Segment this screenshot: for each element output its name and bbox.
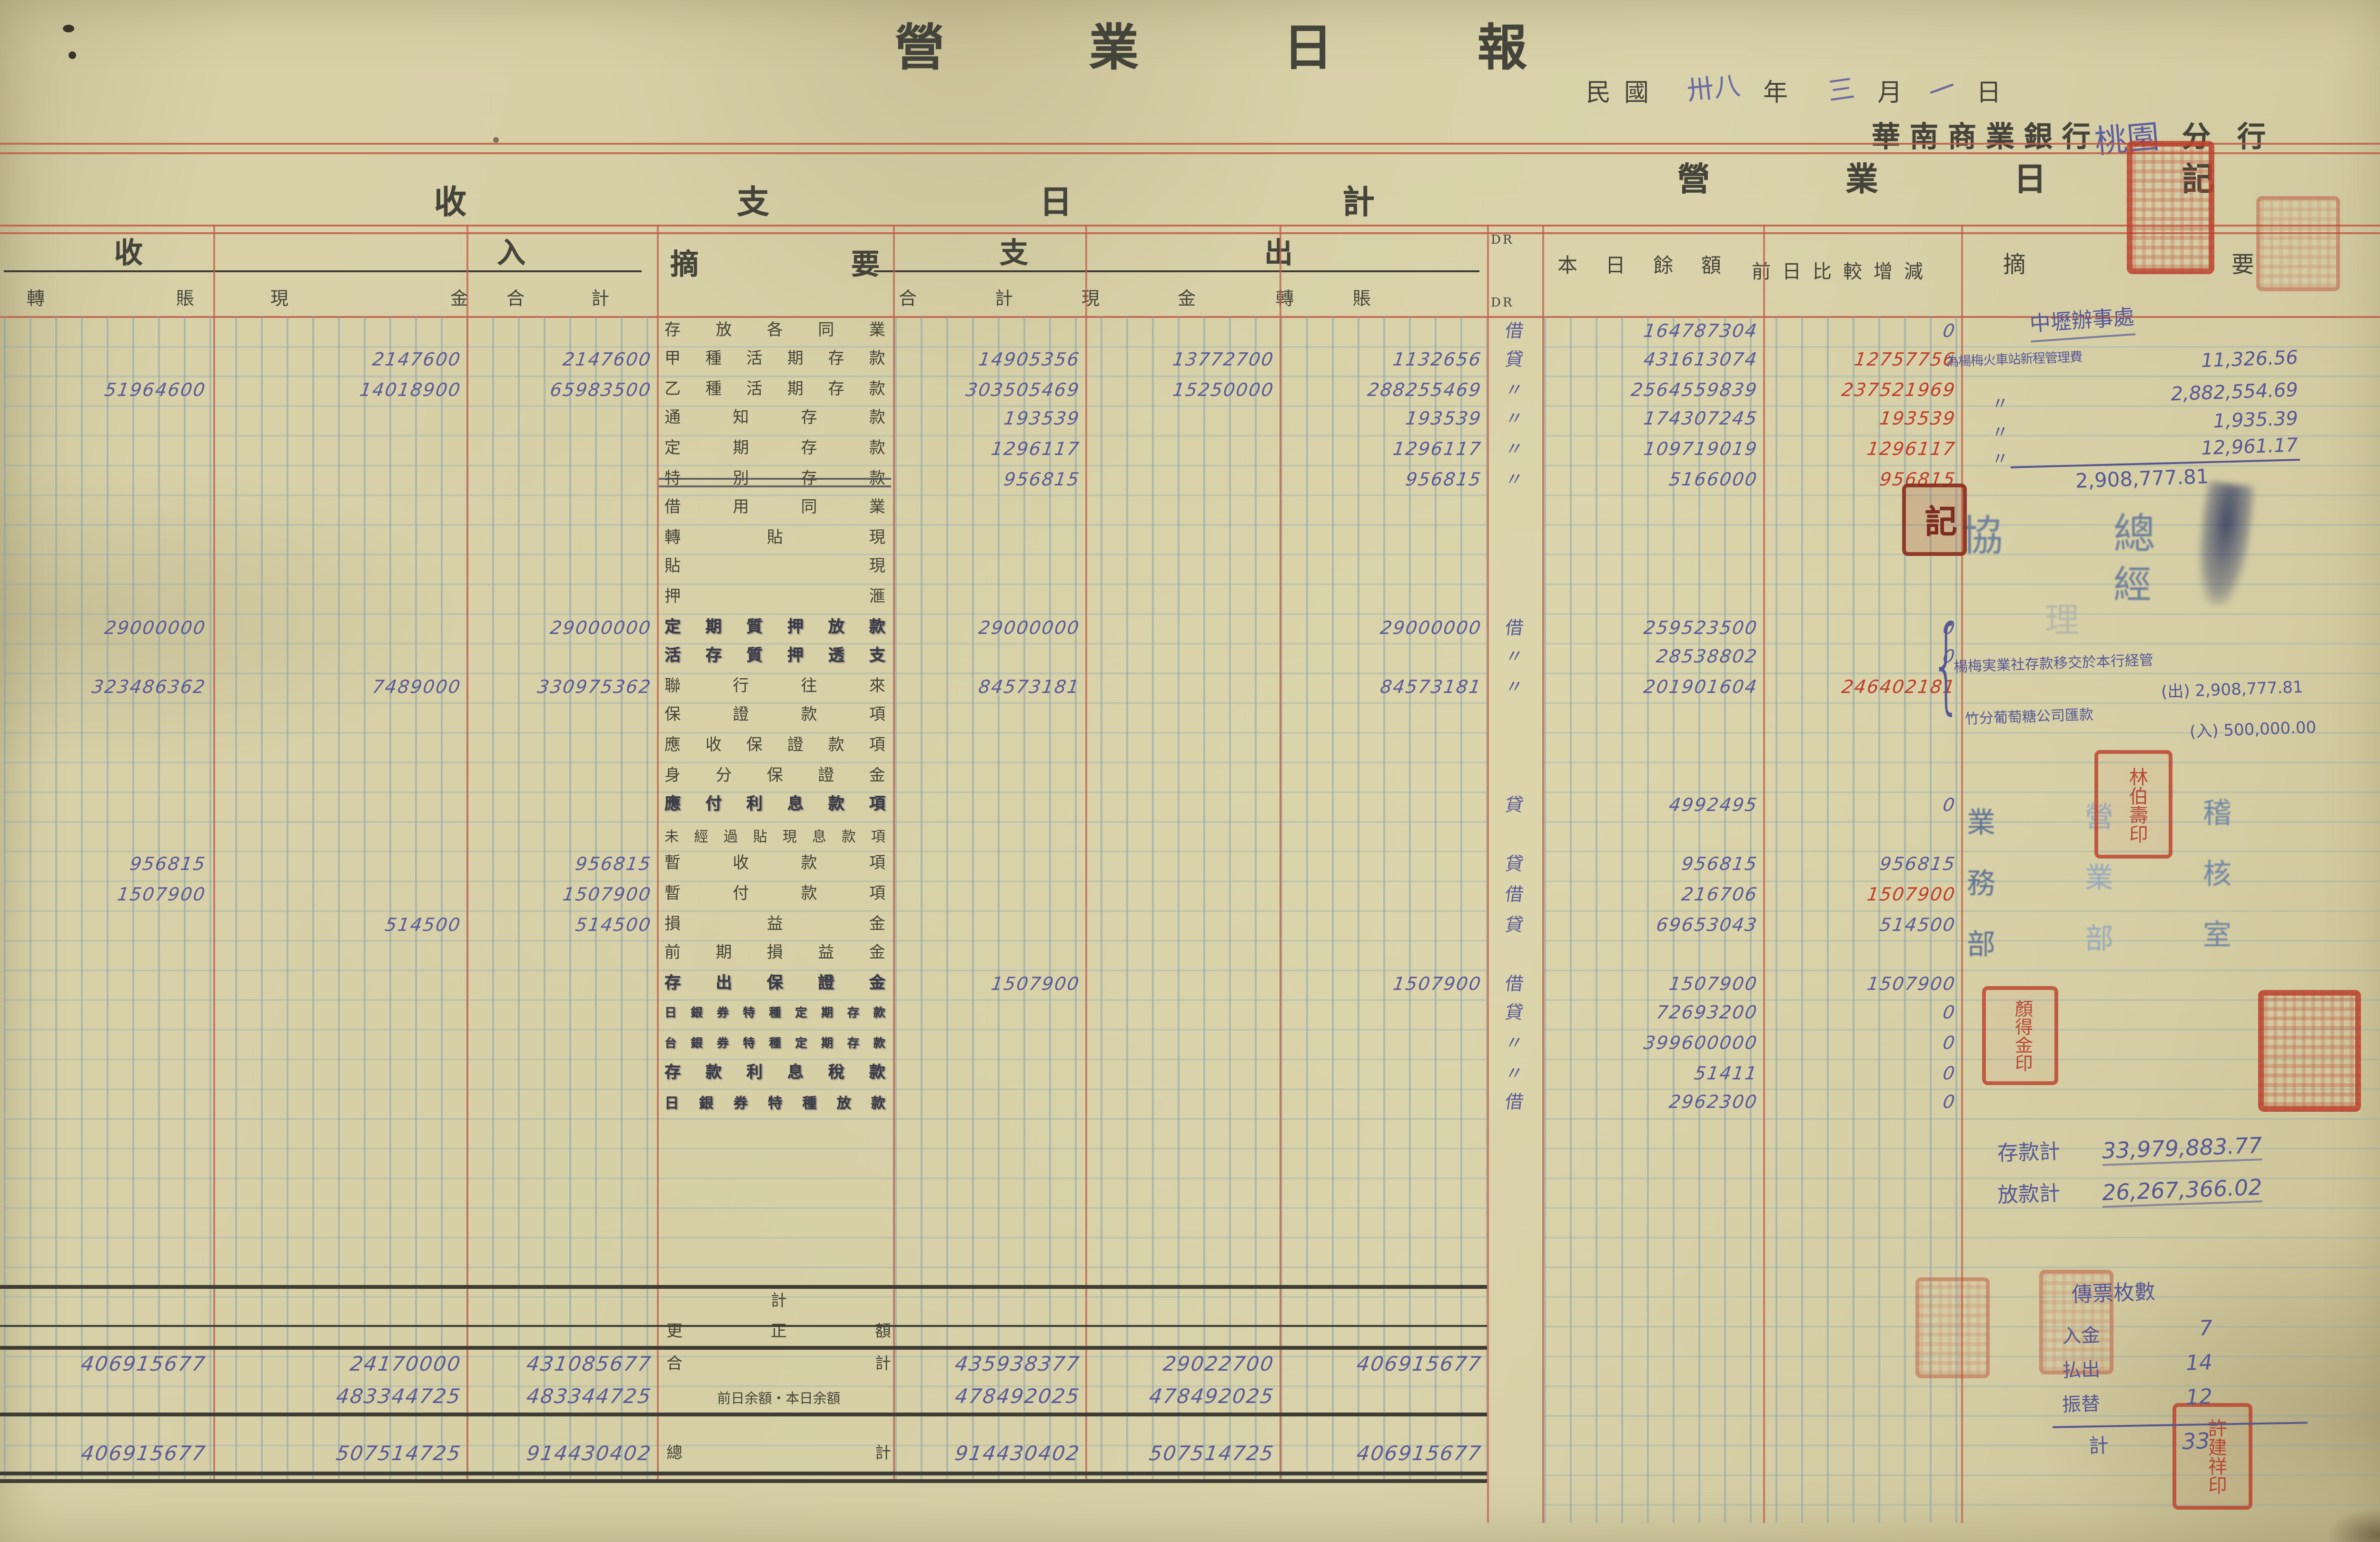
table-row: 定期質押放款29000000290000002900000029000000借2…	[0, 614, 2380, 643]
account-label: 存出保證金	[664, 970, 885, 1000]
xu-seal: 許建祥印	[2172, 1403, 2252, 1510]
amount-et: 84573181	[889, 673, 1082, 703]
table-row: 聯行往來323486362748900033097536284573181845…	[0, 673, 2380, 703]
ditto-mark: 〃	[1991, 390, 2009, 415]
char: 計	[1342, 175, 1375, 223]
account-label: 甲種活期存款	[664, 346, 885, 376]
amount-ic: 507514725	[215, 1440, 463, 1470]
summary-column-label: 摘要	[670, 244, 880, 284]
account-label: 轉貼現	[664, 525, 885, 554]
table-row: 應付利息款項貸49924950	[0, 792, 2380, 821]
account-label: 應收保證款項	[664, 733, 885, 762]
amount-etr: 29000000	[1274, 614, 1484, 643]
table-row: 身分保證金	[0, 762, 2380, 792]
total-rule	[0, 1346, 1487, 1349]
dr-marker: 〃	[1487, 376, 1543, 406]
char: 業	[1089, 10, 1139, 80]
dr-marker: 〃	[1487, 436, 1543, 465]
amount-ic: 24170000	[215, 1351, 463, 1380]
voucher-label: 振替	[2062, 1387, 2101, 1417]
amount-itot: 330975362	[466, 673, 654, 703]
voucher-total-label: 計	[2088, 1431, 2109, 1460]
total-rule	[0, 1285, 1487, 1288]
total-label: 合計	[666, 1351, 891, 1380]
amount-bal: 1507900	[1542, 970, 1775, 1000]
header-underline	[874, 270, 1479, 272]
char: 摘	[2003, 247, 2026, 280]
header-underline	[4, 270, 642, 272]
dr-marker: 〃	[1487, 673, 1543, 703]
account-label: 暫付款項	[664, 881, 885, 911]
table-row: 貼現	[0, 554, 2380, 584]
dr-marker: 貸	[1487, 1000, 1543, 1029]
char: 報	[1478, 10, 1527, 80]
account-label: 通知存款	[664, 406, 885, 435]
dept-audit: 稽核室	[2197, 798, 2237, 980]
total-row: 計	[0, 1288, 2380, 1317]
char: 減	[1904, 255, 1923, 284]
amount-it: 406915677	[2, 1440, 208, 1470]
char: 賬	[1353, 284, 1371, 310]
table-row: 借用同業	[0, 495, 2380, 524]
document-title: 營業日報	[895, 10, 1527, 80]
amount-chg: 0	[1763, 1000, 2007, 1029]
dr-marker: 貸	[1487, 346, 1543, 376]
amount-et: 956815	[889, 465, 1082, 495]
red-seal-top	[2127, 141, 2214, 274]
total-label: 計	[666, 1288, 891, 1317]
amount-ic: 7489000	[215, 673, 463, 703]
amount-etr: 84573181	[1274, 673, 1484, 703]
amount-et: 1507900	[889, 970, 1082, 1000]
amount-itot: 514500	[466, 911, 654, 940]
amount-ec: 13772700	[1080, 346, 1276, 376]
amount-chg: 0	[1763, 1089, 2007, 1118]
income-col-total: 合計	[506, 284, 609, 310]
char: 前	[1752, 255, 1771, 284]
staple-mark	[69, 51, 76, 59]
amount-ic: 514500	[215, 911, 463, 940]
dr-marker: 〃	[1487, 643, 1543, 673]
char: 要	[2231, 247, 2254, 280]
char: 日	[1283, 10, 1333, 80]
total-rule	[0, 1325, 1487, 1327]
char: 營	[1677, 152, 1710, 200]
amount-bal: 201901604	[1542, 673, 1775, 703]
amount-bal: 4992495	[1542, 792, 1775, 821]
char: 日	[1606, 251, 1626, 280]
voucher-label: 払出	[2062, 1353, 2101, 1383]
account-label: 定期質押放款	[664, 614, 885, 643]
table-row: 特別存款956815956815〃5166000956815	[0, 465, 2380, 495]
amount-ic: 483344725	[215, 1383, 463, 1413]
dr-label-bottom: DR	[1491, 295, 1514, 310]
char: 入	[497, 232, 526, 272]
table-row: 損益金514500514500貸69653043514500	[0, 911, 2380, 940]
account-label: 存款利息稅款	[664, 1059, 885, 1089]
account-label: 身分保證金	[664, 762, 885, 792]
amount-bal: 431613074	[1542, 346, 1775, 376]
bank-name: 華南商業銀行	[1872, 116, 2100, 156]
voucher-value: 14	[2132, 1350, 2213, 1378]
amount-it: 1507900	[2, 881, 208, 911]
amount-bal: 174307245	[1542, 406, 1775, 435]
amount-chg: 514500	[1763, 911, 1977, 940]
char: 日	[2014, 152, 2046, 200]
income-group-label: 收入	[114, 232, 526, 272]
income-col-transfer: 轉賬	[27, 284, 194, 310]
char: 額	[1701, 251, 1721, 280]
note-b-value: (入) 500,000.00	[2189, 715, 2317, 742]
amount-chg: 956815	[1763, 851, 1977, 881]
char: 收	[114, 232, 143, 272]
dr-marker: 借	[1487, 1089, 1543, 1118]
amount-chg: 237521969	[1763, 376, 1977, 406]
amount-bal: 51411	[1542, 1059, 1775, 1089]
amount-itot: 914430402	[466, 1440, 654, 1470]
account-label: 暫收款項	[664, 851, 885, 881]
char: 收	[434, 175, 466, 223]
red-rule	[0, 142, 2380, 145]
dr-marker: 貸	[1487, 911, 1543, 940]
table-row: 轉貼現	[0, 525, 2380, 554]
amount-et: 303505469	[889, 376, 1082, 406]
amount-bal: 164787304	[1542, 317, 1775, 346]
account-label: 損益金	[664, 911, 885, 940]
day-suffix: 日	[1976, 72, 2001, 109]
amount-chg: 1507900	[1763, 881, 1977, 911]
char: 金	[450, 284, 468, 310]
total-row: 合計40691567724170000431085677435938377290…	[0, 1351, 2380, 1380]
table-row: 押滙	[0, 584, 2380, 614]
ditto-mark: 〃	[1991, 418, 2009, 444]
dr-marker: 貸	[1487, 851, 1543, 881]
amount-it: 29000000	[2, 614, 208, 643]
char: 要	[851, 244, 880, 284]
account-label: 特別存款	[664, 465, 885, 495]
table-row: 暫付款項15079001507900借2167061507900	[0, 881, 2380, 911]
balance-column-label: 本日餘額	[1557, 251, 1721, 280]
expense-col-cash: 現金	[1081, 284, 1196, 310]
amount-bal: 399600000	[1542, 1030, 1775, 1059]
expense-col-total: 合計	[899, 284, 1013, 310]
red-seal-top-right	[2256, 196, 2340, 291]
total-label: 更正額	[666, 1319, 891, 1349]
char: 比	[1813, 255, 1832, 284]
amount-ec: 29022700	[1080, 1351, 1276, 1380]
table-row: 暫收款項956815956815貸956815956815	[0, 851, 2380, 881]
table-row: 定期存款12961171296117〃1097190191296117	[0, 436, 2380, 465]
total-rule	[0, 1479, 1487, 1482]
voucher-heading: 傳票枚數	[2071, 1276, 2156, 1309]
ji-stamp-text: 記	[1917, 504, 1951, 536]
day-handwritten: 一	[1923, 67, 1961, 112]
voucher-value: 7	[2132, 1316, 2213, 1344]
char: 合	[506, 284, 525, 310]
account-label: 乙種活期存款	[664, 376, 885, 406]
amount-bal: 259523500	[1542, 614, 1775, 643]
faint-seal-left	[1915, 1277, 1990, 1378]
table-row: 存放各同業借1647873040	[0, 317, 2380, 346]
total-row: 前日余額・本日余額4833447254833447254784920254784…	[0, 1383, 2380, 1413]
amount-itot: 2147600	[466, 346, 654, 376]
table-row: 應收保證款項	[0, 733, 2380, 762]
amount-et: 478492025	[889, 1383, 1082, 1413]
amount-it: 406915677	[2, 1351, 208, 1380]
dr-marker: 借	[1487, 317, 1543, 346]
char: 餘	[1653, 251, 1673, 280]
voucher-label: 入金	[2062, 1319, 2101, 1349]
account-label: 聯行往來	[664, 673, 885, 703]
deposits-total-value: 33,979,883.77	[2102, 1132, 2262, 1166]
amount-bal: 956815	[1542, 851, 1775, 881]
account-label: 前期損益金	[664, 940, 885, 970]
year-handwritten: 卅八	[1685, 66, 1742, 109]
amount-etr: 288255469	[1274, 376, 1484, 406]
amount-chg: 0	[1763, 614, 2007, 643]
char: 增	[1874, 255, 1893, 284]
account-label: 定期存款	[664, 436, 885, 465]
char: 轉	[27, 284, 45, 310]
char: 計	[995, 284, 1013, 310]
note-total: 2,908,777.81	[2075, 466, 2209, 494]
char: 支	[737, 175, 769, 223]
amount-ic: 2147600	[215, 346, 463, 376]
amount-etr: 1507900	[1274, 970, 1484, 1000]
dr-marker: 借	[1487, 881, 1543, 911]
income-col-cash: 現金	[270, 284, 468, 310]
total-label: 總計	[666, 1440, 891, 1470]
amount-ec: 478492025	[1080, 1383, 1276, 1413]
staple-mark	[63, 25, 74, 32]
yan-seal-text: 顏得金印	[2011, 999, 2030, 1072]
lin-seal: 林伯壽印	[2094, 750, 2172, 859]
expense-col-transfer: 轉賬	[1276, 284, 1371, 310]
amount-chg: 0	[1763, 317, 2007, 346]
amount-chg: 193539	[1763, 406, 1977, 435]
change-column-label: 前日比較增減	[1752, 255, 1923, 284]
scan-viewport: 營業日報 民國 卅八 年 三 月 一 日 華南商業銀行 桃園 分行 收支日計 營…	[0, 0, 2380, 1542]
amount-itot: 956815	[466, 851, 654, 881]
amount-bal: 216706	[1542, 881, 1775, 911]
amount-itot: 1507900	[466, 881, 654, 911]
red-seal-audit	[2258, 990, 2361, 1112]
voucher-value: 12	[2132, 1384, 2213, 1412]
table-row: 乙種活期存款5196460014018900659835003035054691…	[0, 376, 2380, 406]
char: 現	[1081, 284, 1100, 310]
char: 現	[270, 284, 288, 310]
yan-seal: 顏得金印	[1982, 986, 2058, 1085]
amount-it: 323486362	[2, 673, 208, 703]
amount-ic: 14018900	[215, 376, 463, 406]
amount-etr: 193539	[1274, 406, 1484, 435]
loans-total-value: 26,267,366.02	[2102, 1174, 2262, 1208]
amount-etr: 1132656	[1274, 346, 1484, 376]
amount-bal: 2962300	[1542, 1089, 1775, 1118]
amount-et: 914430402	[889, 1440, 1082, 1470]
amount-bal: 5166000	[1542, 465, 1775, 495]
amount-chg: 1296117	[1763, 436, 1977, 465]
signature-xie: 協	[1961, 503, 2003, 563]
dr-marker: 借	[1487, 614, 1543, 643]
month-suffix: 月	[1877, 72, 1902, 109]
amount-chg: 0	[1763, 1030, 2007, 1059]
era-label: 民國	[1586, 72, 1662, 109]
char: 本	[1557, 251, 1577, 280]
char: 營	[895, 10, 944, 80]
amount-itot: 431085677	[466, 1351, 654, 1380]
lin-seal-text: 林伯壽印	[2123, 766, 2143, 842]
signature-jing: 經	[2113, 554, 2152, 609]
table-row: 未經過貼現息款項	[0, 822, 2380, 851]
account-label: 日銀券特種放款	[664, 1089, 885, 1118]
amount-chg: 0	[1763, 1059, 2007, 1089]
amount-it: 51964600	[2, 376, 208, 406]
ditto-mark: 〃	[1991, 445, 2009, 470]
char: 日	[1782, 255, 1801, 284]
dr-marker: 貸	[1487, 792, 1543, 821]
dr-marker: 〃	[1487, 1059, 1543, 1089]
amount-et: 435938377	[889, 1351, 1082, 1380]
dr-marker: 〃	[1487, 465, 1543, 495]
amount-it: 956815	[2, 851, 208, 881]
amount-bal: 72693200	[1542, 1000, 1775, 1029]
expense-group-label: 支出	[1000, 232, 1293, 272]
amount-chg: 12757756	[1763, 346, 1977, 376]
signature-li-faint: 理	[2045, 594, 2079, 643]
note-b-text: 竹分葡萄糖公司匯款	[1964, 704, 2093, 729]
signature-zong: 總	[2113, 501, 2155, 562]
dr-marker: 借	[1487, 970, 1543, 1000]
char: 業	[1845, 152, 1878, 200]
account-label: 借用同業	[664, 495, 885, 524]
account-label: 押滙	[664, 584, 885, 614]
char: 較	[1843, 255, 1862, 284]
ji-stamp: 記	[1902, 484, 1967, 556]
char: 轉	[1276, 284, 1294, 310]
dr-marker: 〃	[1487, 1030, 1543, 1059]
amount-etr: 406915677	[1274, 1440, 1484, 1470]
voucher-total-value: 33	[2182, 1427, 2210, 1455]
char: 合	[899, 284, 917, 310]
amount-bal: 109719019	[1542, 436, 1775, 465]
table-row: 通知存款193539193539〃174307245193539	[0, 406, 2380, 435]
char: 摘	[670, 244, 699, 284]
char: 出	[1264, 232, 1293, 272]
office-heading: 中壢辦事處	[2029, 301, 2135, 342]
red-rule	[0, 225, 2380, 227]
amount-et: 193539	[889, 406, 1082, 435]
char: 計	[591, 284, 609, 310]
amount-bal: 28538802	[1542, 643, 1775, 673]
total-label: 前日余額・本日余額	[666, 1383, 891, 1413]
amount-etr: 1296117	[1274, 436, 1484, 465]
account-label: 活存質押透支	[664, 643, 885, 673]
char: 支	[1000, 232, 1028, 272]
char: 金	[1178, 284, 1196, 310]
account-label: 存放各同業	[664, 317, 885, 346]
amount-itot: 65983500	[466, 376, 654, 406]
amount-bal: 2564559839	[1542, 376, 1775, 406]
total-rule	[0, 1472, 1487, 1474]
daily-business-report-sheet: 營業日報 民國 卅八 年 三 月 一 日 華南商業銀行 桃園 分行 收支日計 營…	[0, 0, 2380, 1542]
month-handwritten: 三	[1825, 69, 1857, 110]
amount-itot: 483344725	[466, 1383, 654, 1413]
year-suffix: 年	[1763, 72, 1788, 109]
dept-operations: 業務部	[1961, 807, 2001, 990]
amount-ec: 15250000	[1080, 376, 1276, 406]
account-label: 日銀券特種定期存款	[664, 1000, 885, 1029]
dr-marker: 〃	[1487, 406, 1543, 435]
total-rule	[0, 1413, 1487, 1416]
account-label: 未經過貼現息款項	[664, 822, 885, 851]
account-label: 應付利息款項	[664, 792, 885, 821]
table-row: 前期損益金	[0, 940, 2380, 970]
total-row: 更正額	[0, 1319, 2380, 1349]
amount-et: 1296117	[889, 436, 1082, 465]
total-row: 總計40691567750751472591443040291443040250…	[0, 1440, 2380, 1470]
left-section-title: 收支日計	[434, 175, 1375, 223]
dr-label-top: DR	[1491, 232, 1514, 247]
amount-itot: 29000000	[466, 614, 654, 643]
amount-et: 29000000	[889, 614, 1082, 643]
char: 日	[1040, 175, 1072, 223]
account-label: 保證款項	[664, 703, 885, 732]
amount-chg: 1507900	[1763, 970, 1977, 1000]
deposits-total-label: 存款計	[1997, 1136, 2061, 1168]
amount-etr: 956815	[1274, 465, 1484, 495]
account-label: 貼現	[664, 554, 885, 584]
char: 賬	[176, 284, 194, 310]
amount-etr: 406915677	[1274, 1351, 1484, 1380]
amount-ec: 507514725	[1080, 1440, 1276, 1470]
account-label: 台銀券特種定期存款	[664, 1030, 885, 1059]
table-row: 日銀券特種放款借29623000	[0, 1089, 2380, 1118]
amount-et: 14905356	[889, 346, 1082, 376]
amount-bal: 69653043	[1542, 911, 1775, 940]
loans-total-label: 放款計	[1997, 1177, 2061, 1210]
